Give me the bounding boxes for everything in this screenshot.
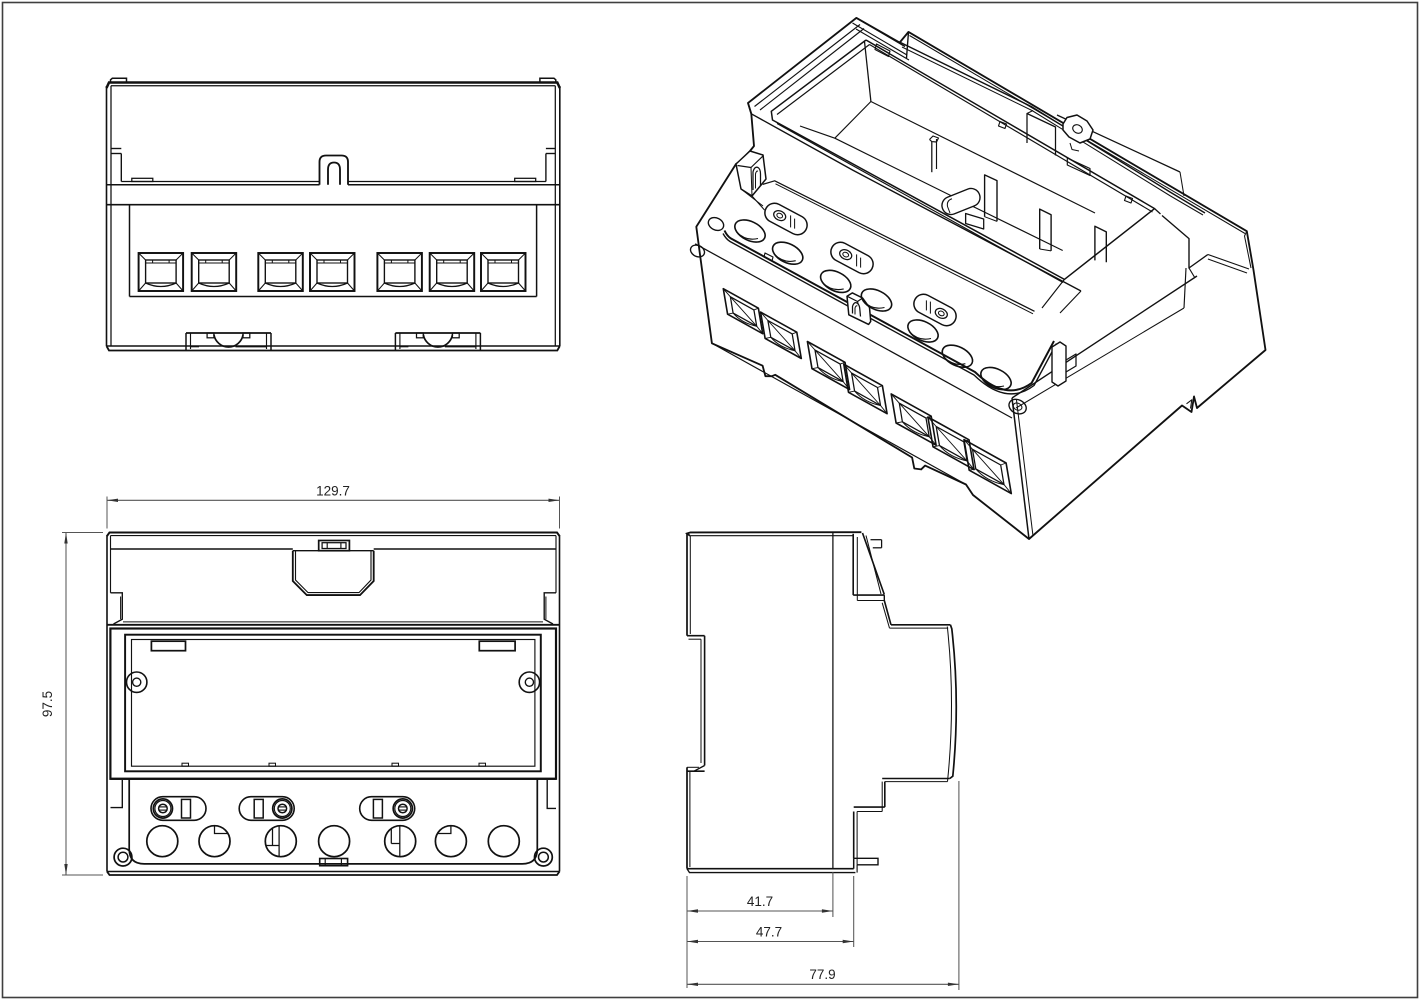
svg-text:47.7: 47.7 — [756, 925, 782, 940]
svg-text:41.7: 41.7 — [747, 894, 773, 909]
svg-text:77.9: 77.9 — [809, 967, 835, 982]
svg-text:129.7: 129.7 — [316, 484, 350, 499]
svg-text:97.5: 97.5 — [40, 691, 55, 717]
